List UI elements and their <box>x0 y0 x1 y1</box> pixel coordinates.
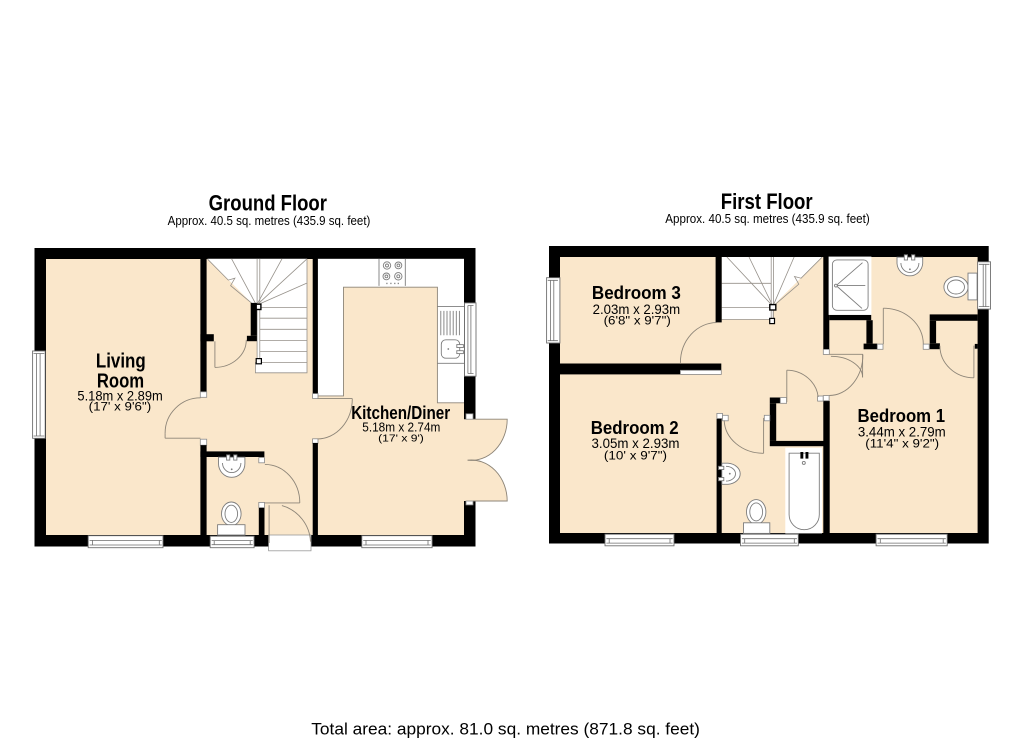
svg-text:Total area: approx. 81.0 sq. m: Total area: approx. 81.0 sq. metres (871… <box>311 720 700 739</box>
svg-text:3.44m x 2.79m: 3.44m x 2.79m <box>858 424 946 440</box>
svg-text:Living: Living <box>96 350 146 372</box>
svg-text:2.03m x 2.93m: 2.03m x 2.93m <box>593 301 681 317</box>
svg-text:Bedroom 3: Bedroom 3 <box>592 282 681 303</box>
svg-text:(6'8" x 9'7"): (6'8" x 9'7") <box>604 316 671 328</box>
svg-text:(17' x 9'): (17' x 9') <box>378 432 424 444</box>
svg-text:Approx. 40.5 sq. metres (435.9: Approx. 40.5 sq. metres (435.9 sq. feet) <box>168 213 371 228</box>
svg-text:3.05m x 2.93m: 3.05m x 2.93m <box>592 435 680 451</box>
svg-text:Approx. 40.5 sq. metres (435.9: Approx. 40.5 sq. metres (435.9 sq. feet) <box>665 211 869 226</box>
svg-text:(10' x 9'7"): (10' x 9'7") <box>604 451 667 463</box>
svg-text:(11'4" x 9'2"): (11'4" x 9'2") <box>865 438 939 450</box>
svg-text:(17' x 9'6"): (17' x 9'6") <box>89 402 152 414</box>
